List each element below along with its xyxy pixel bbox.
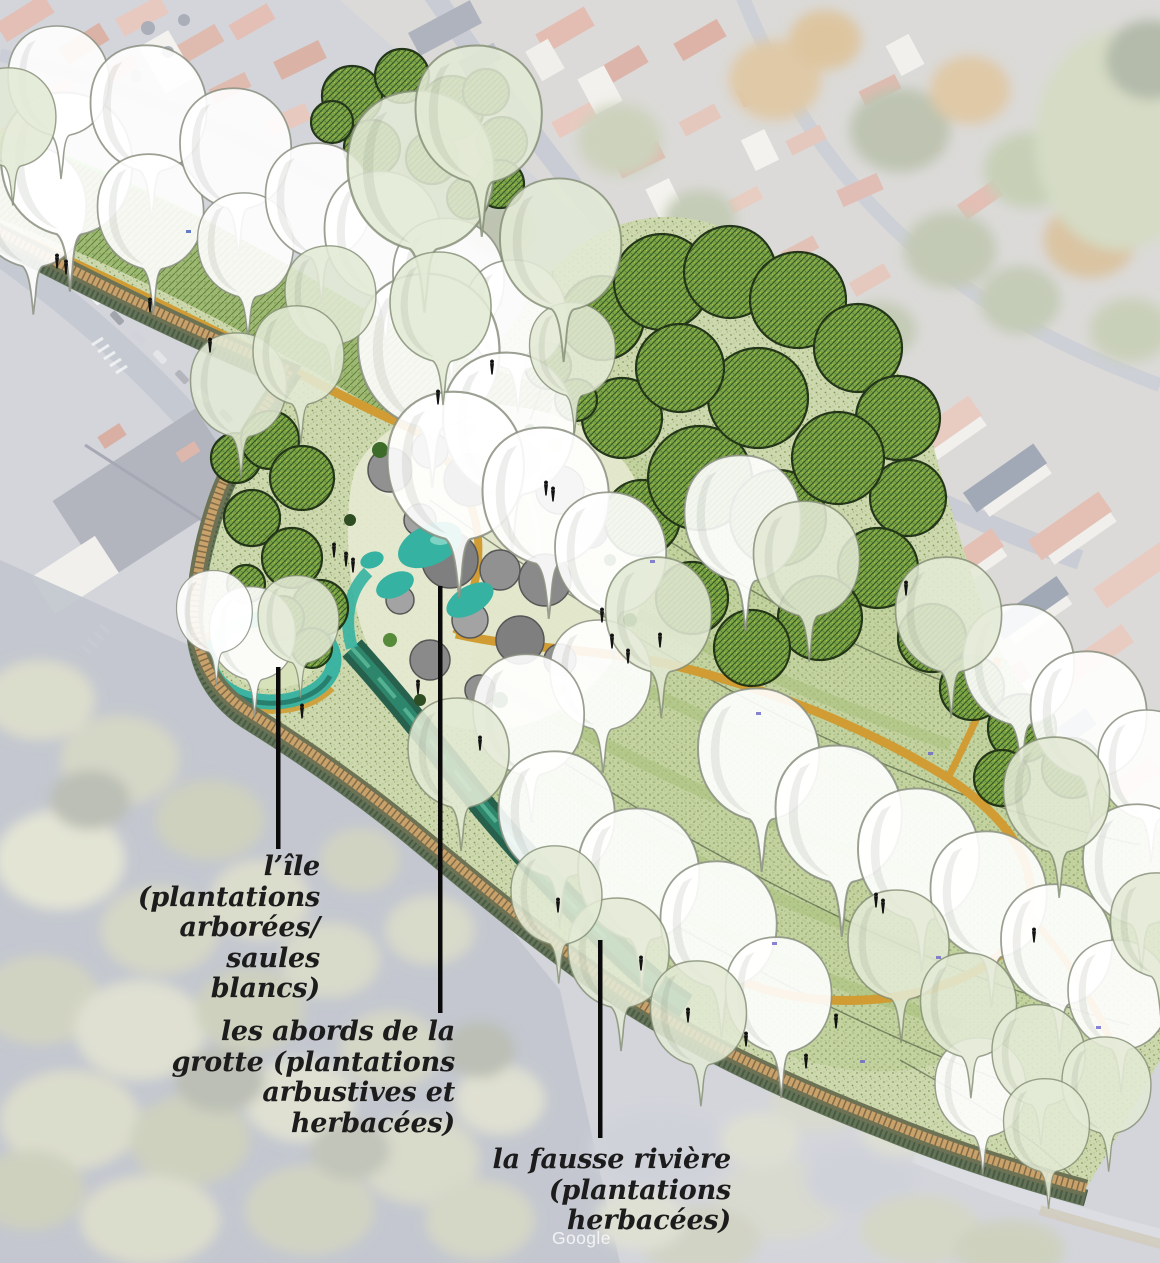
leader-line-ile: [276, 667, 281, 849]
label-grotte: les abords de la grotte (plantations arb…: [172, 1017, 455, 1139]
google-watermark: Google: [552, 1228, 611, 1249]
label-fausse-riviere: la fausse rivière (plantations herbacées…: [493, 1145, 731, 1237]
masterplan-montage: l’île (plantations arborées/ saules blan…: [0, 0, 1160, 1263]
leader-line-fausse-riviere: [598, 940, 603, 1138]
leader-line-grotte: [438, 586, 443, 1013]
label-ile: l’île (plantations arborées/ saules blan…: [138, 852, 320, 1005]
